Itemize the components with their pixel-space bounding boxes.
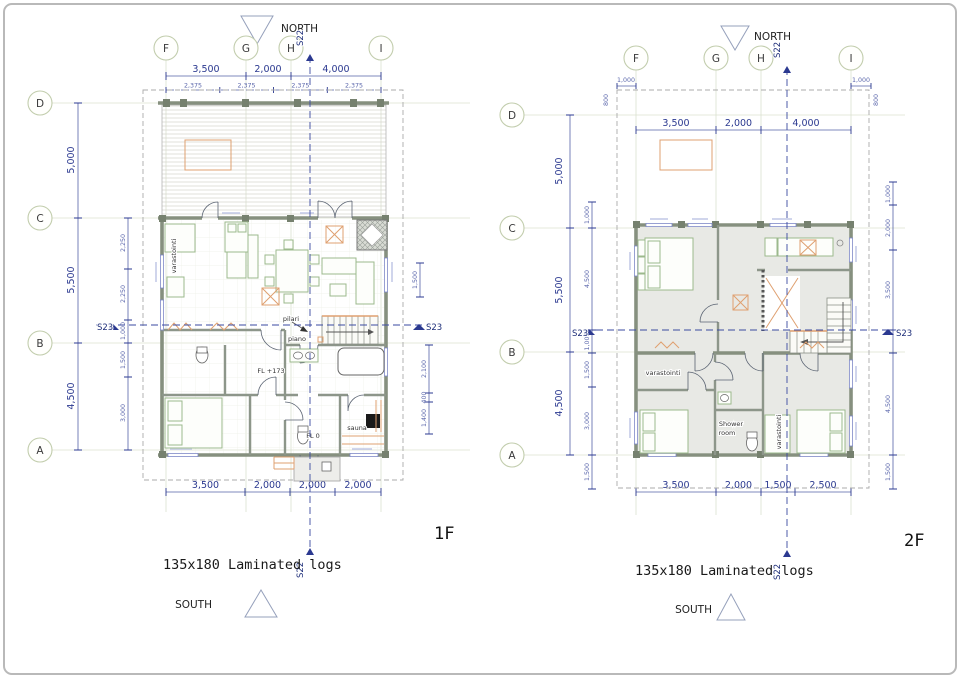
dim-text: 2,250	[120, 285, 127, 303]
dim-text: 4,500	[554, 389, 565, 416]
dim-text: 3,000	[120, 404, 127, 422]
terrace-1f	[158, 99, 389, 217]
dim-text: 4,500	[584, 270, 591, 288]
grid-row-b: B	[508, 347, 515, 359]
section-s22-top-2f: S22	[773, 42, 783, 58]
dim-text: 4,500	[885, 395, 892, 413]
grid-row-c: C	[508, 223, 515, 235]
dim-text: 1,500	[120, 351, 127, 369]
dim-text: 1,000	[852, 77, 870, 84]
dim-text: 2,375	[345, 83, 363, 90]
dim-text: 1,000	[885, 185, 892, 203]
section-s23-right: S23	[426, 323, 442, 333]
dim-text: 5,500	[554, 276, 565, 303]
grid-row-d: D	[508, 110, 516, 122]
dim-text: 1,400	[421, 409, 428, 427]
dim-text: 1,500	[584, 463, 591, 481]
bed-bottom-left-2f	[640, 410, 688, 453]
plan-title-1f: 1F	[434, 524, 454, 544]
section-s22-top: S22	[296, 30, 306, 46]
dim-text: 2,375	[291, 83, 309, 90]
grid-row-d: D	[36, 98, 44, 110]
dim-text: 1,000	[617, 77, 635, 84]
grid-col-i: I	[849, 53, 852, 65]
grid-row-a: A	[508, 450, 516, 462]
dim-text: 2,000	[725, 480, 752, 491]
dim-text: 3,500	[885, 281, 892, 299]
grid-col-h: H	[757, 53, 765, 65]
dim-text: 2,000	[344, 480, 371, 491]
shower-room-label-2: room	[719, 429, 736, 437]
dim-text: 4,000	[792, 118, 819, 129]
dim-text: 3,000	[584, 412, 591, 430]
grid-col-f: F	[633, 53, 639, 65]
dim-text: 1,500	[412, 271, 419, 289]
section-s23-right-2f: S23	[896, 329, 912, 339]
dim-text: 4,000	[322, 64, 349, 75]
south-label-1f: SOUTH	[175, 599, 212, 611]
shower-room-label-1: Shower	[719, 420, 744, 428]
dim-text: 1,500	[885, 463, 892, 481]
piano-label: piano	[288, 335, 306, 343]
dim-text: 4,500	[66, 382, 77, 409]
study-2f	[765, 238, 843, 256]
dim-text: 2,000	[254, 64, 281, 75]
plan-title-2f: 2F	[904, 531, 924, 551]
south-label-2f: SOUTH	[675, 604, 712, 616]
bedroom-1f	[165, 398, 222, 448]
dim-text: 800	[603, 94, 610, 106]
storage-label: varastointi	[170, 238, 178, 273]
grid-row-b: B	[36, 338, 43, 350]
stairs-1f	[318, 316, 378, 344]
dim-text: 3,500	[662, 118, 689, 129]
floor-plan-drawing: NORTH F G H I D C B A 3,500 2,000 4,000	[0, 0, 960, 678]
dim-text: 2,000	[885, 219, 892, 237]
grid-col-i: I	[379, 43, 382, 55]
grid-col-h: H	[287, 43, 295, 55]
dim-text: 3,500	[662, 480, 689, 491]
storage-label-2f: varastointi	[646, 369, 681, 377]
north-label-2f: NORTH	[754, 31, 791, 43]
dim-text: 2,100	[421, 360, 428, 378]
dim-text: 2,500	[809, 480, 836, 491]
logs-note-1f: 135x180 Laminated logs	[163, 557, 342, 573]
dim-text: 800	[873, 94, 880, 106]
storage2-label-2f: varastointi	[775, 414, 783, 449]
dim-text: 2,375	[184, 83, 202, 90]
grid-row-c: C	[36, 213, 43, 225]
dim-text: 3,500	[192, 64, 219, 75]
dim-text: 2,375	[237, 83, 255, 90]
bathtub	[338, 348, 384, 375]
floor-level-entry-label: FL 0	[306, 432, 320, 440]
dim-text: 400	[421, 391, 428, 403]
section-s23-left: S23	[97, 323, 113, 333]
drawing-sheet: NORTH F G H I D C B A 3,500 2,000 4,000	[0, 0, 960, 678]
dim-text: 1,500	[584, 361, 591, 379]
dim-text: 5,500	[66, 266, 77, 293]
floor-level-main-label: FL +173	[257, 367, 284, 375]
grid-row-a: A	[36, 445, 44, 457]
bed-top-left-2f	[638, 238, 693, 290]
dim-text: 2,000	[299, 480, 326, 491]
dim-text: 1,500	[764, 480, 791, 491]
grid-col-g: G	[242, 43, 250, 55]
grid-col-g: G	[712, 53, 720, 65]
pillar-label: pilari	[283, 315, 299, 323]
dim-text: 2,000	[725, 118, 752, 129]
sauna-stove	[366, 414, 380, 428]
section-s23-left-2f: S23	[572, 329, 588, 339]
sauna-label: sauna	[347, 424, 367, 432]
dim-text: 3,500	[192, 480, 219, 491]
dim-text: 1,000	[584, 206, 591, 224]
dim-text: 2,250	[120, 234, 127, 252]
dim-text: 2,000	[254, 480, 281, 491]
grid-col-f: F	[163, 43, 169, 55]
dim-text: 5,000	[554, 157, 565, 184]
dim-text: 5,000	[66, 146, 77, 173]
logs-note-2f: 135x180 Laminated logs	[635, 563, 814, 579]
